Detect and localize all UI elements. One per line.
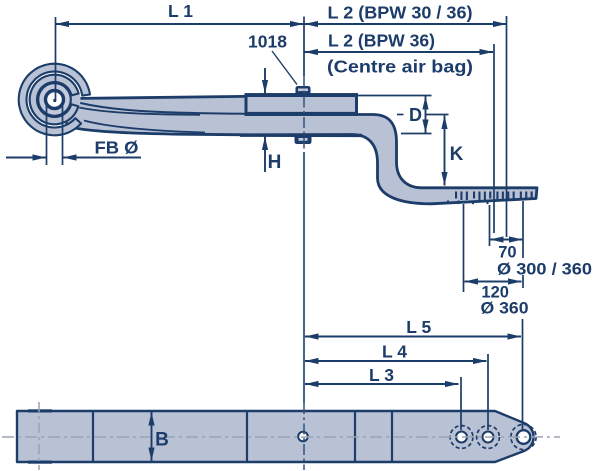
svg-text:Ø 300 / 360: Ø 300 / 360 [497,260,592,278]
svg-text:70: 70 [498,244,516,262]
svg-text:L 5: L 5 [406,317,431,337]
svg-text:H: H [268,152,282,173]
svg-text:L 4: L 4 [382,342,407,362]
svg-text:L 2 (BPW 30 / 36): L 2 (BPW 30 / 36) [328,3,473,23]
svg-text:L 3: L 3 [369,365,394,385]
svg-text:120: 120 [481,283,509,301]
svg-text:1018: 1018 [248,32,287,52]
svg-text:FB Ø: FB Ø [95,138,139,158]
svg-text:Ø 360: Ø 360 [481,300,529,318]
svg-text:K: K [450,144,464,165]
svg-text:(Centre air bag): (Centre air bag) [327,57,473,77]
svg-text:B: B [155,429,169,450]
svg-text:D: D [409,105,422,125]
svg-text:L 1: L 1 [168,1,193,21]
svg-text:L 2 (BPW 36): L 2 (BPW 36) [328,31,435,51]
